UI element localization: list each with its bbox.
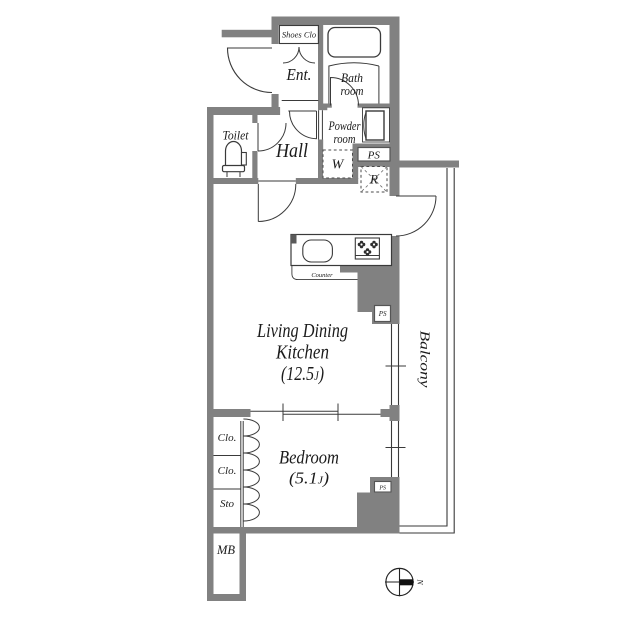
svg-text:Sto: Sto	[220, 498, 235, 510]
svg-text:Kitchen: Kitchen	[275, 342, 329, 364]
svg-text:Bath: Bath	[341, 71, 363, 85]
svg-text:MB: MB	[216, 543, 235, 557]
svg-text:PS: PS	[378, 486, 386, 492]
svg-text:room: room	[341, 84, 364, 98]
svg-text:Clo.: Clo.	[218, 465, 237, 477]
svg-text:Clo.: Clo.	[218, 432, 237, 444]
svg-text:room: room	[334, 132, 356, 146]
svg-text:Toilet: Toilet	[223, 129, 249, 143]
svg-text:Counter: Counter	[311, 272, 333, 279]
svg-text:Hall: Hall	[275, 140, 308, 162]
svg-text:PS: PS	[378, 310, 387, 318]
svg-text:Ent.: Ent.	[286, 65, 312, 84]
svg-text:Shoes Clo: Shoes Clo	[282, 29, 316, 39]
svg-text:N: N	[416, 578, 425, 585]
svg-text:PS: PS	[367, 150, 381, 162]
svg-text:(5.1J): (5.1J)	[289, 469, 329, 488]
svg-text:Powder: Powder	[328, 119, 361, 133]
svg-text:(12.5J): (12.5J)	[281, 363, 324, 385]
svg-text:Bedroom: Bedroom	[279, 448, 339, 469]
svg-text:W: W	[332, 158, 345, 173]
svg-text:Living Dining: Living Dining	[256, 320, 348, 342]
svg-text:R: R	[369, 172, 378, 187]
svg-text:Balcony: Balcony	[417, 331, 432, 389]
